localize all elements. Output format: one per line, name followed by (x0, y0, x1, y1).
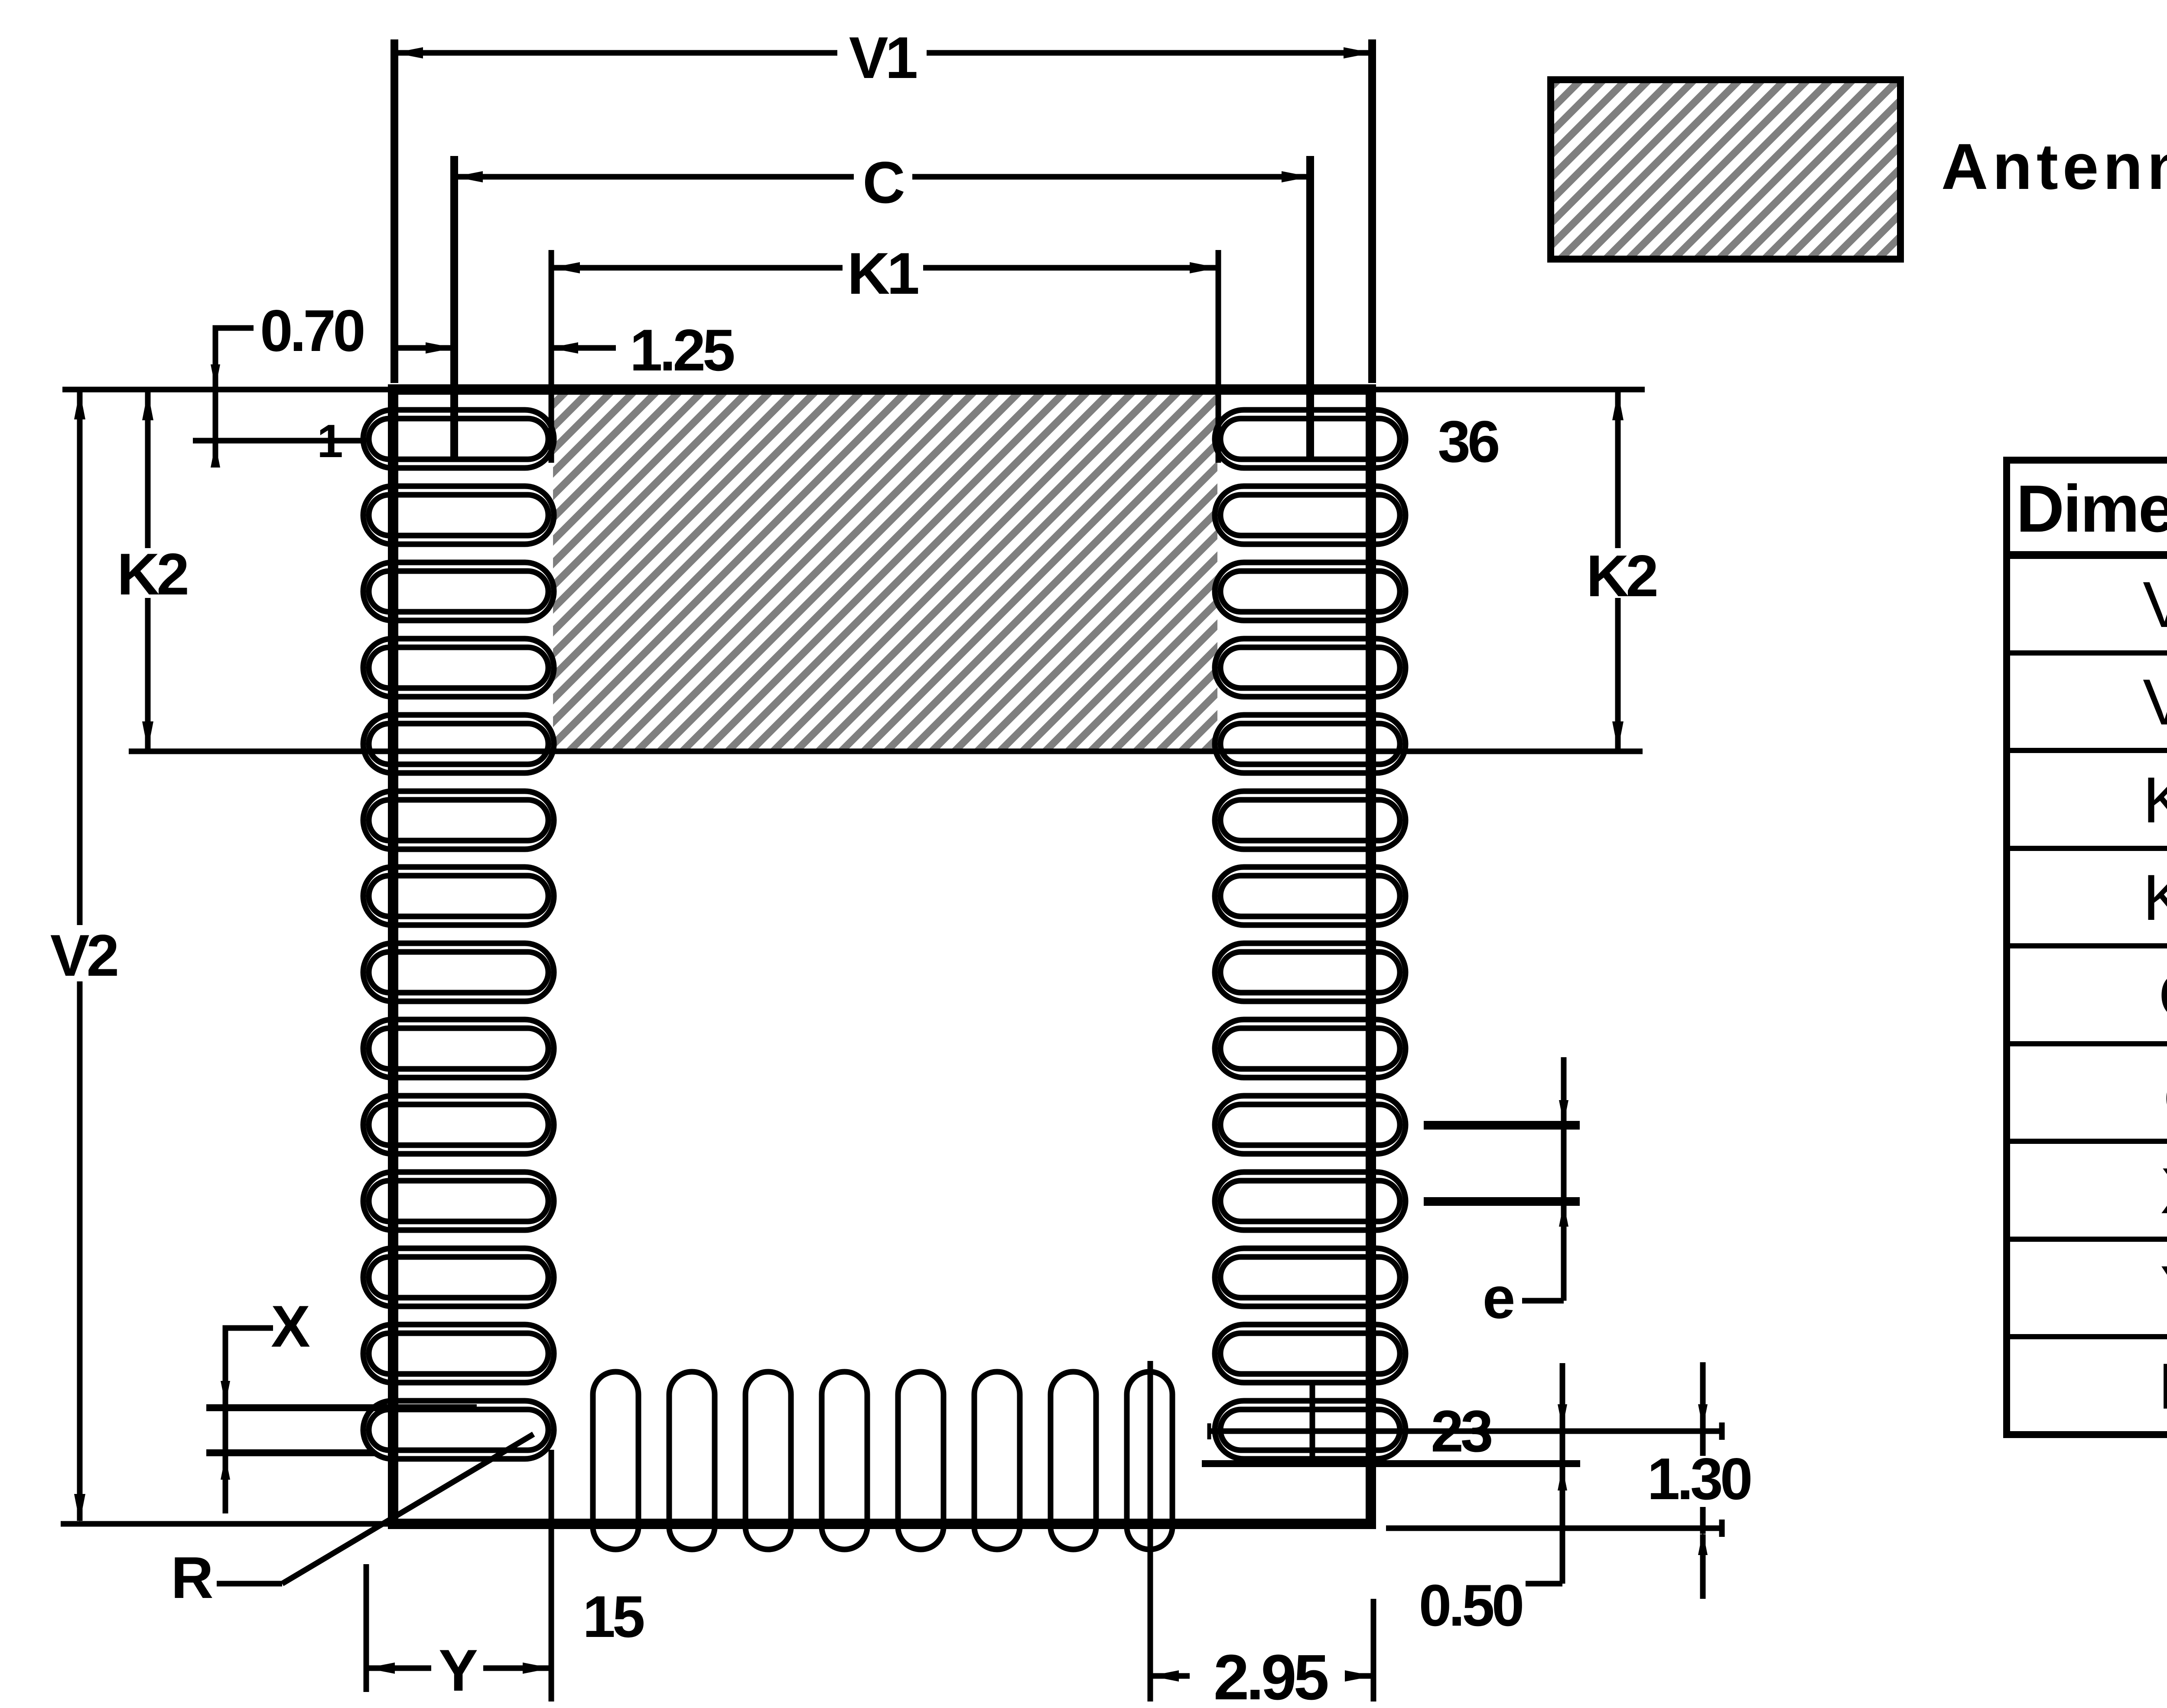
svg-text:X: X (271, 1293, 310, 1359)
svg-text:K2: K2 (2143, 861, 2167, 934)
svg-text:V1: V1 (849, 25, 917, 91)
svg-text:V2: V2 (50, 922, 117, 988)
svg-text:e: e (2164, 1057, 2167, 1130)
svg-text:0.50: 0.50 (1419, 1572, 1523, 1638)
svg-text:K2: K2 (1586, 543, 1656, 609)
svg-text:C: C (862, 149, 904, 215)
svg-text:2.95: 2.95 (1214, 1642, 1328, 1708)
svg-text:1: 1 (317, 415, 342, 467)
svg-text:Antenna keep out zone: Antenna keep out zone (1941, 130, 2167, 203)
svg-text:e: e (1483, 1265, 1513, 1331)
svg-text:Dimension: Dimension (2016, 471, 2167, 546)
svg-text:V2: V2 (2143, 666, 2167, 738)
svg-text:K1: K1 (847, 240, 918, 306)
svg-text:36: 36 (1438, 409, 1498, 474)
svg-text:K1: K1 (2143, 763, 2167, 836)
svg-text:V1: V1 (2143, 568, 2167, 641)
svg-text:Y: Y (439, 1637, 477, 1703)
svg-text:15: 15 (582, 1584, 644, 1650)
svg-text:X: X (2160, 1154, 2167, 1227)
svg-text:23: 23 (1431, 1398, 1491, 1464)
svg-text:Y: Y (2160, 1252, 2167, 1325)
svg-text:1.30: 1.30 (1647, 1446, 1751, 1512)
svg-text:1.25: 1.25 (630, 317, 734, 383)
svg-text:0.70: 0.70 (260, 298, 364, 364)
svg-text:R: R (171, 1545, 212, 1611)
svg-text:R: R (2158, 1350, 2167, 1422)
svg-text:C: C (2158, 959, 2167, 1032)
svg-text:K2: K2 (117, 541, 187, 607)
